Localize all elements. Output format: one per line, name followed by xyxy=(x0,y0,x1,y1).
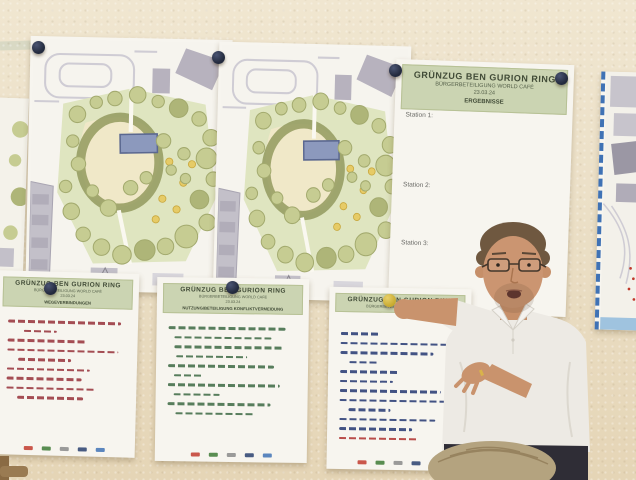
partner-logo xyxy=(95,447,104,452)
partner-logo xyxy=(23,445,32,450)
handwritten-note-line xyxy=(8,319,121,324)
flipchart-wegeverbindungen: GRÜNZUG BEN GURION RING BÜRGERBETEILIGUN… xyxy=(0,270,139,458)
partner-logo xyxy=(190,452,199,457)
flipchart-2-handwritten-notes xyxy=(163,319,300,416)
handwritten-note-line xyxy=(173,393,219,396)
results-poster-header: GRÜNZUG BEN GURION RING BÜRGERBETEILIGUN… xyxy=(401,64,568,114)
partner-logo xyxy=(244,453,253,458)
flipchart-nutzung: GRÜNZUG BEN GURION RING BÜRGERBETEILIGUN… xyxy=(155,277,310,463)
partner-logo xyxy=(357,460,366,465)
pin-magnet xyxy=(212,51,225,64)
plan-sliver-left xyxy=(0,97,29,274)
flipchart-2-topic: NUTZUNG/BETEILIGUNG KONFLIKTVERMEIDUNG xyxy=(165,305,301,312)
chair-corner xyxy=(0,454,30,480)
pin-magnet xyxy=(555,72,568,85)
park-site-plan-drawing xyxy=(28,39,229,291)
pin-magnet xyxy=(32,41,45,54)
partner-logo xyxy=(262,453,271,458)
handwritten-note-line xyxy=(176,412,255,416)
site-plan-variant-1 xyxy=(25,36,232,294)
handwritten-note-line xyxy=(6,376,82,380)
pavilion-building-blue xyxy=(304,141,339,160)
workshop-photo: GRÜNZUG BEN GURION RING BÜRGERBETEILIGUN… xyxy=(0,0,636,480)
partner-logo xyxy=(226,452,235,457)
handwritten-note-line xyxy=(6,386,94,391)
wall-rail xyxy=(0,40,32,50)
handwritten-note-line xyxy=(176,355,247,358)
partner-logo xyxy=(59,446,68,451)
station-1-label: Station 1: xyxy=(405,111,433,119)
handwritten-note-line xyxy=(7,348,118,353)
eye xyxy=(496,263,500,267)
handwritten-note-line xyxy=(17,396,83,400)
handwritten-note-line xyxy=(24,329,57,332)
flipchart-1-handwritten-notes xyxy=(2,312,130,401)
handwritten-note-line xyxy=(174,345,283,349)
handwritten-note-line xyxy=(169,326,286,330)
presenter xyxy=(380,212,636,480)
pin-magnet xyxy=(44,282,57,295)
handwritten-note-line xyxy=(18,358,71,362)
pin-magnet xyxy=(389,64,402,77)
handwritten-note-line xyxy=(173,374,203,377)
partner-logo xyxy=(208,452,217,457)
handwritten-note-line xyxy=(7,367,90,372)
handwritten-note-line xyxy=(7,338,85,343)
plan-sliver-drawing xyxy=(0,97,29,274)
eye xyxy=(527,263,531,267)
handwritten-note-line xyxy=(174,336,272,340)
handwritten-note-line xyxy=(168,383,280,387)
presenter-head xyxy=(475,222,551,313)
handwritten-note-line xyxy=(341,332,379,335)
pavilion-building-blue xyxy=(120,134,157,153)
station-2-label: Station 2: xyxy=(403,181,431,189)
flipchart-2-partner-logos xyxy=(155,451,307,458)
flipchart-1-header: GRÜNZUG BEN GURION RING BÜRGERBETEILIGUN… xyxy=(2,276,133,309)
handwritten-note-line xyxy=(168,364,274,368)
handwritten-note-line xyxy=(349,361,379,364)
flipchart-1-partner-logos xyxy=(0,445,135,453)
partner-logo xyxy=(77,447,86,452)
partner-logo xyxy=(41,446,50,451)
pin-magnet xyxy=(226,281,239,294)
handwritten-note-line xyxy=(168,402,271,406)
